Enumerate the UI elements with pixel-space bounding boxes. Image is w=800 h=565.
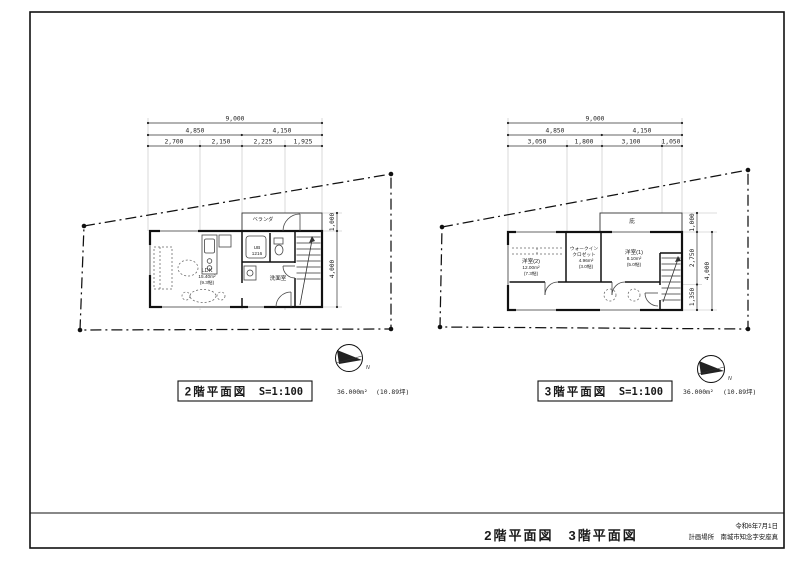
plan2-right-dimensions [336, 212, 338, 308]
plan2-dim-row2-0: 4,850 [186, 128, 205, 135]
plan2-washroom-label: 洗面室 [270, 274, 287, 282]
footer-date: 令和6年7月1日 [735, 521, 778, 530]
plan2-ub-name: UB [254, 245, 261, 250]
plan2-area-tsubo: (10.89坪) [376, 388, 409, 396]
plan2-balcony-label: ベランダ [253, 215, 274, 223]
plan2-dim-row3-1: 2,150 [212, 139, 231, 146]
plan2-ldk-tatami: (9.3帖) [200, 279, 215, 286]
plan3-dim-row3-0: 3,050 [528, 139, 547, 146]
plan-2f: 9,000 4,850 4,150 2,700 2,150 2,225 1,92… [78, 116, 410, 402]
plan3-wic-line1: ウォークイン [570, 245, 598, 252]
plan3-dim-row2-1: 4,150 [633, 128, 652, 135]
plan2-dim-right-1: 4,000 [329, 259, 336, 278]
plan3-eave-label: 庇 [629, 217, 635, 225]
plan3-wic-tatami: (3.0帖) [579, 263, 594, 270]
plan2-dim-total: 9,000 [226, 116, 245, 123]
plan3-room2-name: 洋室(2) [522, 257, 540, 265]
plan2-dim-row3-2: 2,225 [254, 139, 273, 146]
plan3-room2-area: 12.00m² [522, 265, 540, 270]
plan3-compass-label: N [728, 376, 732, 382]
plan3-room2-tatami: (7.3帖) [524, 270, 539, 277]
plan3-dim-right-3: 4,000 [704, 261, 711, 280]
plan2-title-box: 2階平面図 S=1:100 [178, 381, 312, 401]
plan3-dim-right-1: 2,750 [689, 248, 696, 267]
plan2-area-m2: 36.000m² [337, 388, 368, 396]
plan2-title: 2階平面図 [185, 385, 247, 399]
plan2-dim-row2-1: 4,150 [273, 128, 292, 135]
plan3-dim-total: 9,000 [586, 116, 605, 123]
plan2-compass-label: N [366, 365, 370, 371]
plan3-room1-name: 洋室(1) [625, 248, 643, 256]
plan3-dim-right-2: 1,350 [689, 287, 696, 306]
plan3-dim-row3-3: 1,050 [662, 139, 681, 146]
plan2-building-outline [150, 213, 322, 307]
plan3-right-dimensions [696, 212, 713, 311]
footer-title: 2階平面図 3階平面図 [484, 528, 637, 543]
plan2-dim-row3-0: 2,700 [165, 139, 184, 146]
plan3-title-box: 3階平面図 S=1:100 [538, 381, 672, 401]
footer-location: 計画場所 南城市知念字安座真 [689, 532, 779, 541]
plan3-dim-right-0: 1,000 [689, 213, 696, 232]
plan3-title: 3階平面図 [545, 385, 607, 399]
plan3-dim-row3-2: 3,100 [622, 139, 641, 146]
plan2-ldk-area: 15.40m² [198, 274, 216, 279]
plan3-wic-line2: クロゼット [572, 251, 595, 258]
footer: 2階平面図 3階平面図 令和6年7月1日 計画場所 南城市知念字安座真 [484, 521, 778, 543]
plan3-north-arrow-icon: N [698, 356, 733, 383]
drawing-sheet: 9,000 4,850 4,150 2,700 2,150 2,225 1,92… [0, 0, 800, 565]
plan-3f: 9,000 4,850 4,150 3,050 1,800 3,100 1,05… [438, 116, 757, 402]
plan2-north-arrow-icon: N [336, 345, 371, 372]
plan2-ub-size: 1216 [252, 251, 263, 256]
floor-plan-canvas: 9,000 4,850 4,150 2,700 2,150 2,225 1,92… [0, 0, 800, 565]
plan2-dim-right-0: 1,000 [329, 212, 336, 231]
plan2-dim-row3-3: 1,925 [294, 139, 313, 146]
plan3-dim-row3-1: 1,800 [575, 139, 594, 146]
plan3-dim-row2-0: 4,850 [546, 128, 565, 135]
plan3-room1-area: 8.10m² [627, 256, 642, 261]
plan3-room1-tatami: (5.0帖) [627, 261, 642, 268]
plan3-area-m2: 36.000m² [683, 388, 714, 396]
plan3-scale: S=1:100 [619, 386, 663, 398]
plan2-scale: S=1:100 [259, 386, 303, 398]
plan3-area-tsubo: (10.89坪) [723, 388, 756, 396]
plan3-wic-area: 4.96m² [579, 258, 594, 263]
